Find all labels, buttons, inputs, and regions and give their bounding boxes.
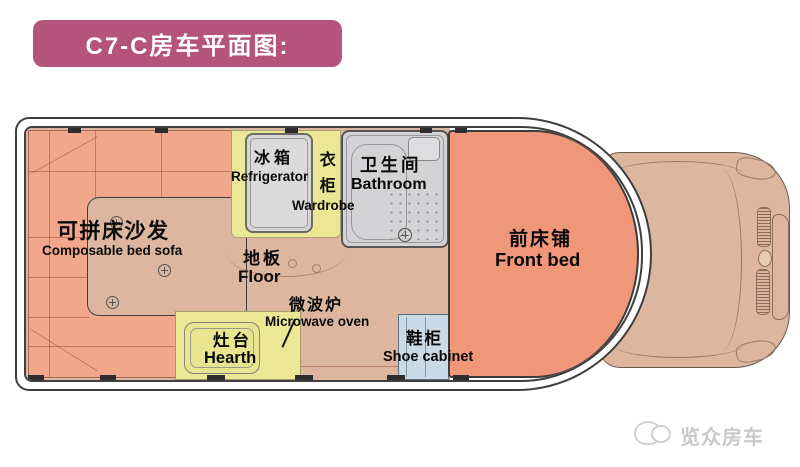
shower-floor-dots: [387, 190, 443, 240]
wall-tick: [387, 375, 405, 380]
front-bed-label-en: Front bed: [495, 250, 580, 269]
bathroom-label-en: Bathroom: [351, 177, 427, 194]
wardrobe-label-zh: 衣柜: [316, 151, 333, 203]
sofa-label-en: Composable bed sofa: [42, 244, 182, 258]
title-banner: C7-C房车平面图:: [33, 20, 342, 67]
floor-fixture-circle: [288, 259, 297, 268]
sofa-panel-line: [29, 346, 176, 347]
page-title: C7-C房车平面图:: [86, 26, 290, 61]
refrigerator-label-en: Refrigerator: [231, 170, 308, 184]
wardrobe-label-en: Wardrobe: [292, 199, 355, 213]
wall-tick: [455, 128, 467, 133]
shoe-cabinet-label-zh: 鞋柜: [406, 331, 443, 348]
cab-logo-badge: [758, 250, 772, 267]
sofa-corner-diagonal: [31, 136, 98, 174]
microwave-label-en: Microwave oven: [265, 315, 369, 329]
floor-label-zh: 地板: [243, 250, 283, 268]
screw-mark-icon: [158, 264, 171, 277]
wall-tick: [100, 375, 116, 380]
cab-grille-upper: [757, 207, 771, 247]
counter-edge-line: [301, 366, 398, 367]
sofa-label-zh: 可拼床沙发: [57, 221, 170, 243]
brand-watermark: 览众房车: [634, 414, 784, 454]
screw-mark-icon: [106, 296, 119, 309]
chat-bubble-logo-icon: [651, 425, 671, 443]
cab-front-bumper: [772, 214, 789, 320]
wall-tick: [155, 128, 168, 133]
sofa-panel-line: [29, 277, 89, 278]
shoe-cabinet-label-en: Shoe cabinet: [383, 350, 473, 365]
wall-tick: [68, 128, 81, 133]
floor-label-en: Floor: [238, 268, 281, 286]
wall-tick: [28, 375, 44, 380]
drain-icon: [398, 228, 412, 242]
sofa-corner-diagonal: [31, 329, 98, 371]
wall-tick: [420, 128, 432, 133]
cab-grille-lower: [756, 269, 770, 315]
wall-tick: [295, 375, 313, 380]
bathroom-label-zh: 卫生间: [360, 156, 422, 174]
brand-name: 览众房车: [680, 421, 764, 450]
floor-fixture-circle: [312, 264, 321, 273]
rv-floorplan-screenshot: C7-C房车平面图:: [0, 0, 800, 467]
microwave-label-zh: 微波炉: [289, 298, 343, 315]
hearth-label-zh: 灶台: [213, 333, 252, 350]
cab-headlight-right-top: [734, 155, 777, 183]
sofa-panel-line: [29, 317, 89, 318]
hearth-label-en: Hearth: [204, 350, 256, 367]
wall-tick: [207, 375, 225, 380]
front-bed-label-zh: 前床铺: [509, 230, 572, 250]
cab-contour-hood: [701, 169, 742, 351]
refrigerator-label-zh: 冰箱: [254, 151, 294, 168]
wall-tick: [285, 128, 298, 133]
sofa-panel-line: [29, 171, 234, 172]
wall-tick: [556, 128, 566, 133]
wall-tick: [453, 375, 469, 380]
